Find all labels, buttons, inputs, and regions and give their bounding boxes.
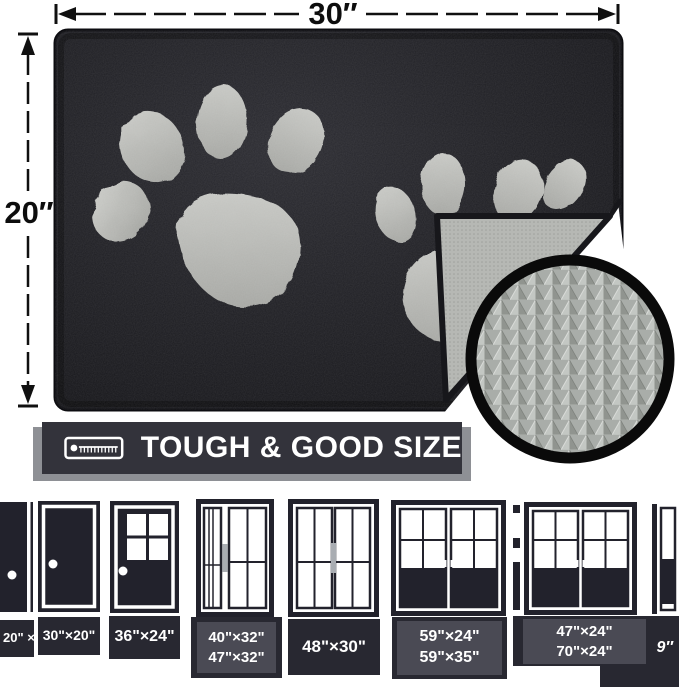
door-icon-4 bbox=[196, 499, 274, 617]
door-size-text: 20" × bbox=[3, 630, 34, 647]
door-size-text: 9″ bbox=[656, 638, 673, 658]
door-handle-icon bbox=[331, 543, 336, 573]
door-size-label-4-panel: 40"×32" 47"×32" bbox=[197, 622, 276, 673]
door-size-text: 59"×35" bbox=[419, 648, 479, 669]
tape-measure-icon bbox=[64, 435, 124, 461]
doorknob-icon bbox=[576, 560, 579, 567]
door-icon-6 bbox=[391, 500, 506, 616]
door-size-label-5: 48"×30" bbox=[288, 619, 380, 675]
door-size-label-1: 20" × bbox=[0, 620, 34, 657]
doorknob-icon bbox=[8, 571, 17, 580]
door-size-text: 70"×24" bbox=[556, 642, 612, 662]
door-size-text: 30"×20" bbox=[43, 627, 96, 645]
doorknob-icon bbox=[451, 560, 454, 567]
door-size-label-7-panel: 47"×24" 70"×24" bbox=[523, 619, 646, 664]
door-handle-icon bbox=[223, 544, 228, 572]
door-size-text: 36"×24" bbox=[114, 627, 174, 647]
door-size-label-2: 30"×20" bbox=[38, 617, 100, 655]
door-icon-7 bbox=[524, 502, 637, 615]
door-size-label-6-panel: 59"×24" 59"×35" bbox=[397, 621, 502, 675]
door-size-label-3: 36"×24" bbox=[109, 616, 180, 659]
door-icon-3 bbox=[110, 501, 179, 613]
door-size-text: 40"×32" bbox=[208, 628, 264, 648]
door-icon-8 bbox=[652, 504, 679, 614]
texture-zoom-inset bbox=[471, 260, 669, 458]
door-icon-1 bbox=[0, 502, 33, 612]
banner-title: TOUGH & GOOD SIZE bbox=[141, 431, 462, 465]
feature-banner: TOUGH & GOOD SIZE bbox=[42, 422, 462, 474]
mat-scene bbox=[0, 0, 679, 480]
doorknob-icon bbox=[49, 560, 58, 569]
product-image: 30″ 20″ TOUGH & GOOD SIZE bbox=[0, 0, 679, 689]
door-size-text: 47"×24" bbox=[556, 622, 612, 642]
door-icon-5 bbox=[288, 499, 379, 617]
width-dimension-label: 30″ bbox=[299, 0, 367, 32]
doorknob-icon bbox=[583, 560, 586, 567]
door-size-text: 48"×30" bbox=[302, 636, 366, 658]
door-size-text: 59"×24" bbox=[419, 627, 479, 648]
doorknob-icon bbox=[119, 567, 128, 576]
door-icon-partial-sliver bbox=[513, 503, 521, 615]
door-icon-2 bbox=[38, 501, 100, 612]
height-dimension-label: 20″ bbox=[1, 195, 57, 231]
doorknob-icon bbox=[444, 560, 447, 567]
door-size-text: 47"×32" bbox=[208, 648, 264, 668]
